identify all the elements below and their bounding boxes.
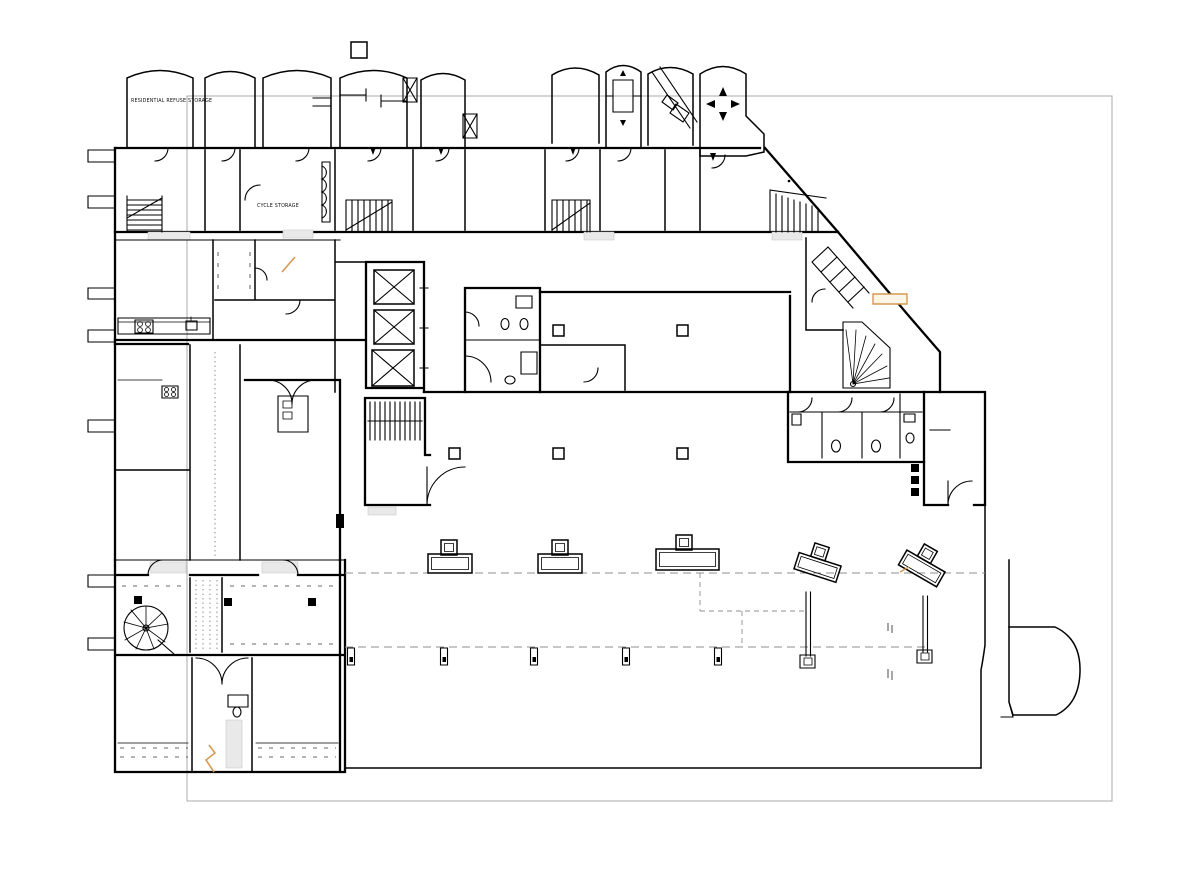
row2-rooms (115, 147, 838, 560)
sink-icon (792, 414, 801, 425)
stair-icon (552, 200, 590, 232)
stair-icon (368, 402, 422, 440)
parking-structure (345, 535, 985, 668)
column-x-marker (403, 78, 477, 138)
floor-plan-canvas: RESIDENTIAL REFUSE STORAGE CYCLE STORAGE (0, 0, 1184, 876)
footing-icon (538, 540, 582, 573)
elevator-x-icon (372, 350, 414, 386)
living-room (245, 380, 344, 560)
cycle-storage-room (245, 162, 330, 222)
door-swing-icon (948, 481, 972, 505)
door-swing-icon (427, 467, 465, 505)
bay-room (1009, 627, 1080, 715)
toilet-icon (520, 319, 528, 330)
bay-unit (205, 72, 255, 149)
toilet-icon (233, 707, 241, 717)
door-swing-icon (465, 312, 491, 382)
bay-tabs (313, 98, 331, 106)
bay-unit (606, 66, 641, 149)
threshold (283, 230, 313, 238)
wc-block (788, 392, 924, 462)
accent-diagonal-mark (282, 257, 295, 272)
store-room (540, 345, 625, 390)
footing-icon (428, 540, 472, 573)
footing-icon (794, 539, 845, 582)
door-swing-icon (245, 185, 260, 200)
threshold (150, 562, 186, 573)
fin-walls (806, 592, 928, 656)
elevator-bank (366, 262, 428, 392)
direction-arrows-icon (706, 87, 740, 121)
bottom-left-block (115, 560, 345, 772)
lift-shaft-icon (606, 70, 641, 126)
break-line-icon (206, 745, 215, 772)
toilet-icon (501, 319, 509, 330)
shower-icon (521, 352, 537, 374)
wall (806, 238, 843, 330)
post-icon (348, 648, 722, 665)
diagonal-outer-wall (838, 232, 940, 392)
accent-highlight-rect (873, 294, 907, 304)
stair-core (365, 398, 465, 515)
elevator-x-icon (374, 310, 414, 344)
plan-labels: RESIDENTIAL REFUSE STORAGE CYCLE STORAGE (131, 98, 299, 209)
threshold (148, 232, 190, 240)
refuse-storage-label: RESIDENTIAL REFUSE STORAGE (131, 98, 212, 104)
bay-unit (421, 74, 465, 149)
threshold (584, 232, 614, 240)
walls (115, 345, 240, 560)
bottom-right-outline (345, 505, 1080, 768)
bay-unit (340, 71, 407, 149)
stair-icon (770, 190, 826, 232)
sink-icon (904, 414, 915, 422)
bay-unit (552, 68, 599, 143)
post-icon (800, 650, 932, 668)
spiral-stair-icon (124, 606, 174, 654)
door-swing-icon (812, 289, 825, 302)
right-wing (788, 232, 985, 505)
stair-icon (127, 196, 162, 232)
deck-hatch (218, 252, 250, 292)
bay-unit (700, 67, 764, 157)
column-marker-icon (134, 596, 316, 606)
toilet-icon (872, 440, 881, 452)
shower-tray (226, 720, 242, 768)
toilet-icon (505, 376, 515, 384)
bay-unit (127, 71, 193, 149)
door-swing-icon (584, 368, 598, 382)
winder-stair-icon (843, 322, 890, 388)
floor-plan-sheet: RESIDENTIAL REFUSE STORAGE CYCLE STORAGE (0, 0, 1184, 876)
riser-shaft-icon (911, 464, 919, 496)
wall (115, 340, 365, 344)
threshold (368, 507, 396, 515)
door-swing-icon (255, 268, 300, 314)
door-swing-icon (798, 398, 894, 412)
bathroom-block (465, 288, 540, 392)
left-boundary-stubs (88, 150, 115, 650)
kitchen-counter (118, 380, 178, 398)
cycle-storage-label: CYCLE STORAGE (257, 203, 299, 209)
kitchen-counter (118, 317, 210, 334)
toilet-icon (832, 440, 841, 452)
sink-icon (516, 296, 532, 308)
bay-unit (263, 71, 331, 149)
stair-icon (812, 247, 869, 308)
sink-icon (228, 695, 248, 707)
parking-guide-line (700, 573, 806, 647)
column-marker-icon (351, 42, 367, 58)
bay-notch (340, 89, 407, 107)
footing-icon (656, 535, 719, 570)
open-area-walls (424, 292, 790, 392)
cooktop-icon (162, 386, 178, 398)
footing-icon (898, 538, 952, 587)
double-door-icon (268, 380, 316, 404)
threshold (772, 232, 802, 240)
entrance-lobby (924, 392, 985, 505)
wall-step (1001, 702, 1013, 717)
faint-marks (887, 623, 893, 680)
stair-icon (346, 200, 392, 232)
double-door-icon (196, 658, 248, 684)
row2-partitions (205, 150, 700, 230)
ramp-band-icon (652, 67, 697, 128)
toilet-icon (906, 433, 914, 443)
bike-rack-icon (322, 166, 326, 218)
top-bay-units (127, 42, 764, 156)
elevator-x-icon (374, 270, 414, 304)
dot-mark (788, 180, 791, 183)
open-area (424, 180, 790, 459)
joist-lines (196, 580, 217, 650)
